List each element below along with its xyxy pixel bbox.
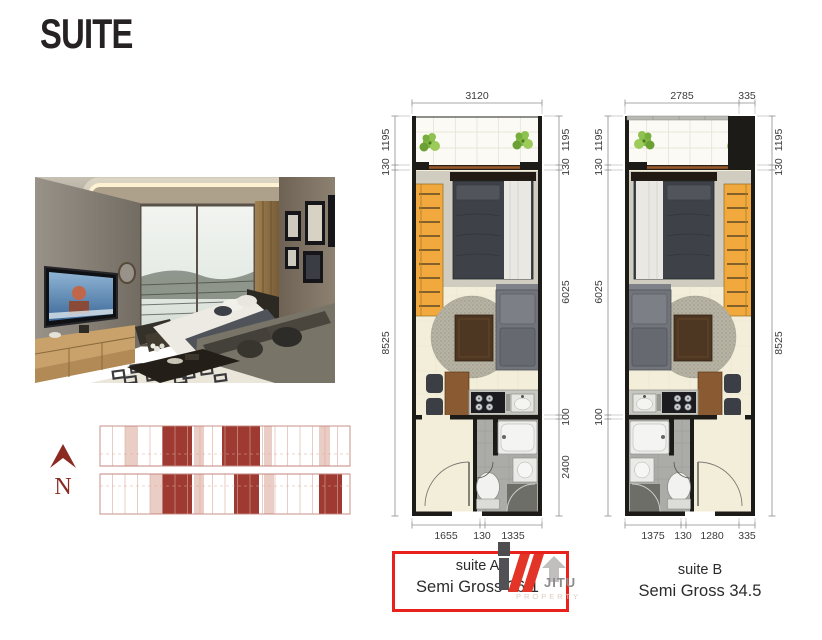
page-title: SUITE (40, 10, 133, 58)
tv (45, 267, 117, 327)
dim-label: 130 (382, 158, 392, 176)
dim-label: 100 (595, 408, 605, 426)
dim-label: 3120 (465, 90, 489, 102)
floor-plan-suite-b: 2785 335 1195 130 6025 100 1195 130 8525… (595, 88, 787, 552)
dim-label: 130 (773, 158, 785, 176)
dim-label: 130 (674, 530, 692, 542)
dim-label: 335 (738, 90, 756, 102)
brochure-page: SUITE (0, 0, 822, 640)
dim-label: 1195 (560, 129, 572, 152)
dim-label: 1195 (773, 129, 785, 152)
dim-label: 8525 (773, 331, 785, 355)
key-plan: N (45, 420, 355, 520)
tv-console (35, 325, 135, 383)
interior-photo (35, 177, 335, 383)
plan-body-suite-b (625, 116, 755, 516)
floor-plate (100, 426, 350, 514)
dim-label: 100 (560, 408, 572, 426)
watermark-logo: JITU PROPERTY (458, 540, 578, 602)
round-mirror (119, 263, 135, 283)
highlighted-units (125, 426, 342, 514)
dim-label: 1195 (595, 129, 605, 152)
dim-label: 130 (595, 158, 605, 176)
dim-label: 1280 (700, 530, 724, 542)
dim-label: 1655 (434, 530, 458, 542)
floor-plan-suite-a: 3120 1195 130 8525 1195 130 6025 100 240… (382, 88, 574, 552)
dim-label: 8525 (382, 331, 392, 355)
dim-label: 2785 (670, 90, 694, 102)
plan-body-suite-a (412, 116, 542, 516)
suite-b-name: suite B (600, 561, 800, 579)
dim-label: 1375 (641, 530, 665, 542)
dim-label: 6025 (560, 280, 572, 304)
dim-label: 6025 (595, 280, 605, 304)
suite-b-area: Semi Gross 34.5 (600, 581, 800, 601)
dim-label: 1195 (382, 129, 392, 152)
dim-label: 335 (738, 530, 756, 542)
dim-label: 2400 (560, 455, 572, 479)
suite-b-label: suite B Semi Gross 34.5 (600, 561, 800, 601)
logo-tagline: PROPERTY (516, 592, 578, 601)
north-label: N (54, 474, 71, 500)
dim-label: 130 (560, 158, 572, 176)
logo-brand: JITU (544, 575, 576, 590)
north-arrow-icon: N (50, 444, 76, 500)
